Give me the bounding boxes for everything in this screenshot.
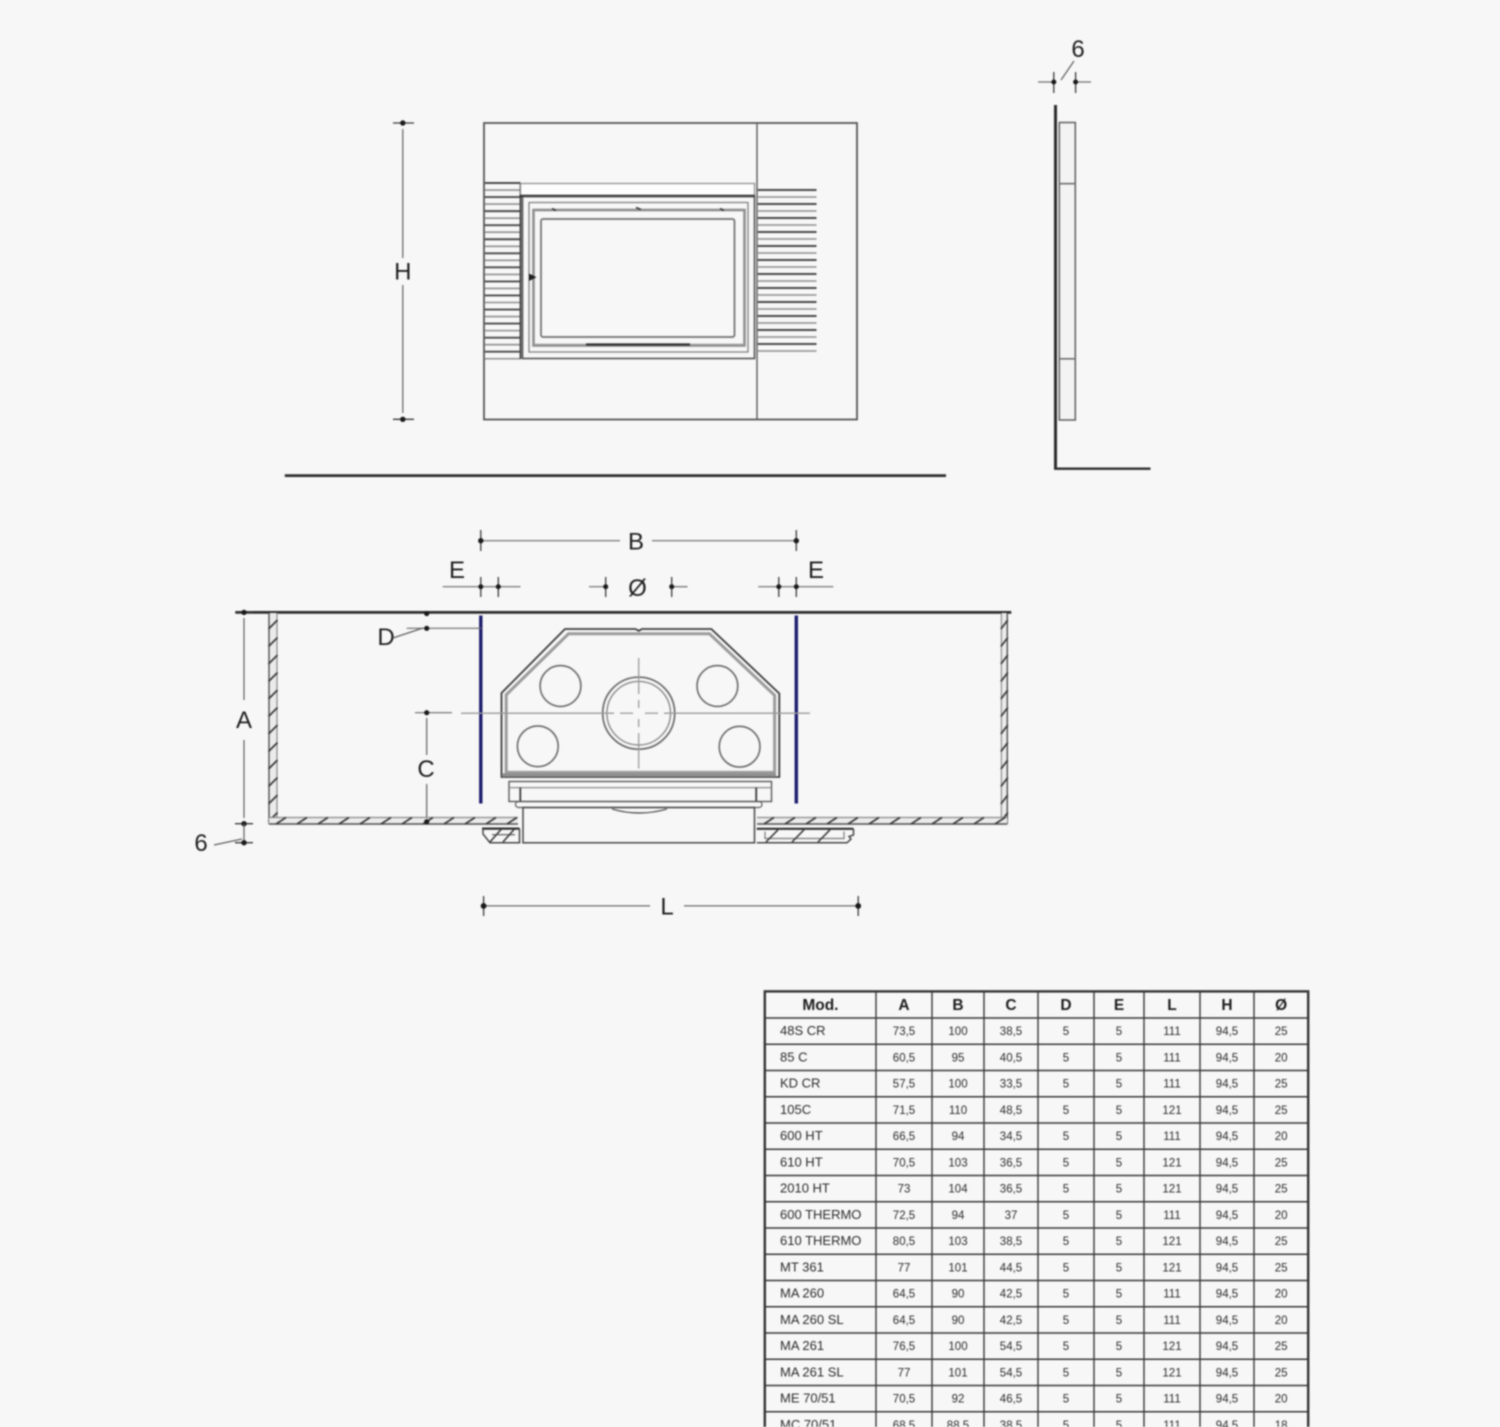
svg-text:D: D bbox=[377, 624, 394, 651]
svg-text:5: 5 bbox=[1063, 1026, 1069, 1038]
svg-text:121: 121 bbox=[1162, 1157, 1181, 1169]
svg-text:94: 94 bbox=[952, 1131, 965, 1143]
svg-text:MA 260: MA 260 bbox=[780, 1286, 824, 1301]
svg-text:20: 20 bbox=[1275, 1289, 1288, 1301]
svg-text:94,5: 94,5 bbox=[1216, 1052, 1238, 1064]
svg-text:5: 5 bbox=[1063, 1341, 1069, 1353]
svg-text:5: 5 bbox=[1063, 1262, 1069, 1274]
svg-text:20: 20 bbox=[1275, 1394, 1288, 1406]
svg-text:88,5: 88,5 bbox=[947, 1420, 969, 1427]
svg-text:94,5: 94,5 bbox=[1216, 1315, 1238, 1327]
svg-text:5: 5 bbox=[1063, 1105, 1069, 1117]
svg-text:70,5: 70,5 bbox=[893, 1157, 915, 1169]
svg-text:90: 90 bbox=[952, 1315, 965, 1327]
svg-text:40,5: 40,5 bbox=[1000, 1052, 1022, 1064]
svg-text:100: 100 bbox=[948, 1026, 967, 1038]
svg-text:6: 6 bbox=[1071, 36, 1084, 63]
svg-text:38,5: 38,5 bbox=[1000, 1420, 1022, 1427]
svg-text:25: 25 bbox=[1275, 1236, 1288, 1248]
svg-text:54,5: 54,5 bbox=[1000, 1367, 1022, 1379]
svg-text:5: 5 bbox=[1116, 1105, 1122, 1117]
svg-text:68,5: 68,5 bbox=[893, 1420, 915, 1427]
svg-text:37: 37 bbox=[1005, 1210, 1018, 1222]
svg-text:94,5: 94,5 bbox=[1216, 1184, 1238, 1196]
svg-text:46,5: 46,5 bbox=[1000, 1394, 1022, 1406]
svg-text:36,5: 36,5 bbox=[1000, 1184, 1022, 1196]
svg-text:5: 5 bbox=[1116, 1210, 1122, 1222]
svg-text:101: 101 bbox=[948, 1367, 967, 1379]
svg-text:5: 5 bbox=[1063, 1131, 1069, 1143]
svg-text:111: 111 bbox=[1163, 1131, 1180, 1143]
svg-text:25: 25 bbox=[1275, 1105, 1288, 1117]
svg-text:111: 111 bbox=[1163, 1052, 1180, 1064]
svg-text:H: H bbox=[394, 259, 411, 286]
svg-text:66,5: 66,5 bbox=[893, 1131, 915, 1143]
svg-text:5: 5 bbox=[1116, 1420, 1122, 1427]
svg-text:111: 111 bbox=[1163, 1315, 1180, 1327]
svg-text:E: E bbox=[1114, 997, 1124, 1014]
svg-text:6: 6 bbox=[194, 830, 207, 857]
svg-text:94,5: 94,5 bbox=[1216, 1262, 1238, 1274]
svg-text:25: 25 bbox=[1275, 1262, 1288, 1274]
svg-text:111: 111 bbox=[1163, 1394, 1180, 1406]
svg-text:121: 121 bbox=[1162, 1341, 1181, 1353]
svg-text:ME 70/51: ME 70/51 bbox=[780, 1391, 836, 1406]
svg-text:94,5: 94,5 bbox=[1216, 1105, 1238, 1117]
svg-text:77: 77 bbox=[898, 1367, 911, 1379]
svg-text:E: E bbox=[449, 557, 465, 584]
svg-text:610 THERMO: 610 THERMO bbox=[780, 1233, 861, 1248]
svg-text:85 C: 85 C bbox=[780, 1049, 807, 1064]
svg-text:70,5: 70,5 bbox=[893, 1394, 915, 1406]
svg-text:5: 5 bbox=[1116, 1262, 1122, 1274]
svg-text:100: 100 bbox=[948, 1079, 967, 1091]
svg-text:71,5: 71,5 bbox=[893, 1105, 915, 1117]
svg-text:64,5: 64,5 bbox=[893, 1315, 915, 1327]
svg-text:5: 5 bbox=[1063, 1184, 1069, 1196]
svg-text:94,5: 94,5 bbox=[1216, 1157, 1238, 1169]
svg-text:94,5: 94,5 bbox=[1216, 1420, 1238, 1427]
svg-text:38,5: 38,5 bbox=[1000, 1236, 1022, 1248]
svg-text:5: 5 bbox=[1063, 1052, 1069, 1064]
svg-text:610 HT: 610 HT bbox=[780, 1154, 823, 1169]
svg-text:103: 103 bbox=[948, 1236, 967, 1248]
svg-text:5: 5 bbox=[1116, 1052, 1122, 1064]
svg-text:MA 261: MA 261 bbox=[780, 1338, 824, 1353]
svg-text:111: 111 bbox=[1163, 1026, 1180, 1038]
svg-text:Mod.: Mod. bbox=[802, 997, 838, 1014]
svg-text:KD CR: KD CR bbox=[780, 1076, 820, 1091]
svg-text:94,5: 94,5 bbox=[1216, 1131, 1238, 1143]
svg-text:64,5: 64,5 bbox=[893, 1289, 915, 1301]
svg-text:5: 5 bbox=[1116, 1079, 1122, 1091]
svg-text:5: 5 bbox=[1063, 1079, 1069, 1091]
svg-text:5: 5 bbox=[1116, 1394, 1122, 1406]
svg-text:42,5: 42,5 bbox=[1000, 1289, 1022, 1301]
svg-text:600 THERMO: 600 THERMO bbox=[780, 1207, 861, 1222]
svg-text:103: 103 bbox=[948, 1157, 967, 1169]
svg-text:121: 121 bbox=[1162, 1236, 1181, 1248]
svg-text:B: B bbox=[952, 997, 963, 1014]
svg-text:73,5: 73,5 bbox=[893, 1026, 915, 1038]
svg-text:104: 104 bbox=[948, 1184, 968, 1196]
svg-text:94,5: 94,5 bbox=[1216, 1341, 1238, 1353]
svg-text:95: 95 bbox=[952, 1052, 965, 1064]
svg-text:5: 5 bbox=[1116, 1184, 1122, 1196]
svg-text:44,5: 44,5 bbox=[1000, 1262, 1022, 1274]
svg-text:94,5: 94,5 bbox=[1216, 1026, 1238, 1038]
svg-text:25: 25 bbox=[1275, 1341, 1288, 1353]
svg-text:20: 20 bbox=[1275, 1131, 1288, 1143]
svg-text:A: A bbox=[898, 997, 909, 1014]
svg-text:25: 25 bbox=[1275, 1367, 1288, 1379]
svg-text:MA 260 SL: MA 260 SL bbox=[780, 1312, 844, 1327]
svg-text:92: 92 bbox=[952, 1394, 965, 1406]
svg-text:5: 5 bbox=[1063, 1210, 1069, 1222]
svg-text:94,5: 94,5 bbox=[1216, 1394, 1238, 1406]
svg-text:5: 5 bbox=[1063, 1157, 1069, 1169]
svg-text:MC 70/51: MC 70/51 bbox=[780, 1417, 836, 1427]
svg-text:5: 5 bbox=[1063, 1236, 1069, 1248]
svg-text:25: 25 bbox=[1275, 1184, 1288, 1196]
svg-text:20: 20 bbox=[1275, 1210, 1288, 1222]
svg-text:5: 5 bbox=[1116, 1131, 1122, 1143]
svg-text:MT 361: MT 361 bbox=[780, 1259, 824, 1274]
svg-text:73: 73 bbox=[898, 1184, 911, 1196]
svg-text:25: 25 bbox=[1275, 1026, 1288, 1038]
svg-text:60,5: 60,5 bbox=[893, 1052, 915, 1064]
svg-text:MA 261 SL: MA 261 SL bbox=[780, 1364, 844, 1379]
svg-text:D: D bbox=[1060, 997, 1071, 1014]
svg-text:H: H bbox=[1221, 997, 1232, 1014]
svg-text:C: C bbox=[1005, 997, 1016, 1014]
svg-text:94,5: 94,5 bbox=[1216, 1367, 1238, 1379]
svg-text:34,5: 34,5 bbox=[1000, 1131, 1022, 1143]
svg-text:20: 20 bbox=[1275, 1315, 1288, 1327]
svg-text:Ø: Ø bbox=[1275, 997, 1287, 1014]
svg-text:5: 5 bbox=[1063, 1420, 1069, 1427]
svg-text:121: 121 bbox=[1162, 1262, 1181, 1274]
svg-text:94,5: 94,5 bbox=[1216, 1236, 1238, 1248]
svg-text:94,5: 94,5 bbox=[1216, 1210, 1238, 1222]
svg-text:76,5: 76,5 bbox=[893, 1341, 915, 1353]
svg-text:33,5: 33,5 bbox=[1000, 1079, 1022, 1091]
svg-text:5: 5 bbox=[1063, 1289, 1069, 1301]
svg-text:5: 5 bbox=[1116, 1367, 1122, 1379]
svg-text:5: 5 bbox=[1116, 1236, 1122, 1248]
svg-text:57,5: 57,5 bbox=[893, 1079, 915, 1091]
svg-text:121: 121 bbox=[1162, 1367, 1181, 1379]
svg-text:54,5: 54,5 bbox=[1000, 1341, 1022, 1353]
svg-text:20: 20 bbox=[1275, 1052, 1288, 1064]
svg-text:5: 5 bbox=[1063, 1394, 1069, 1406]
svg-text:600 HT: 600 HT bbox=[780, 1128, 823, 1143]
svg-text:38,5: 38,5 bbox=[1000, 1026, 1022, 1038]
svg-text:5: 5 bbox=[1116, 1315, 1122, 1327]
svg-text:A: A bbox=[236, 707, 252, 734]
svg-text:111: 111 bbox=[1163, 1289, 1180, 1301]
svg-text:5: 5 bbox=[1063, 1315, 1069, 1327]
svg-text:111: 111 bbox=[1163, 1079, 1180, 1091]
svg-text:110: 110 bbox=[949, 1105, 967, 1117]
svg-text:121: 121 bbox=[1162, 1105, 1181, 1117]
svg-text:5: 5 bbox=[1116, 1026, 1122, 1038]
svg-text:5: 5 bbox=[1116, 1341, 1122, 1353]
svg-text:101: 101 bbox=[948, 1262, 967, 1274]
svg-text:94,5: 94,5 bbox=[1216, 1079, 1238, 1091]
svg-text:5: 5 bbox=[1063, 1367, 1069, 1379]
svg-text:Ø: Ø bbox=[628, 575, 647, 602]
svg-text:72,5: 72,5 bbox=[893, 1210, 915, 1222]
svg-text:C: C bbox=[417, 756, 434, 783]
svg-text:100: 100 bbox=[948, 1341, 967, 1353]
svg-text:L: L bbox=[660, 894, 673, 921]
svg-text:111: 111 bbox=[1163, 1210, 1180, 1222]
svg-text:121: 121 bbox=[1162, 1184, 1181, 1196]
svg-text:94,5: 94,5 bbox=[1216, 1289, 1238, 1301]
svg-text:B: B bbox=[628, 529, 644, 556]
svg-text:80,5: 80,5 bbox=[893, 1236, 915, 1248]
svg-text:90: 90 bbox=[952, 1289, 965, 1301]
svg-text:105C: 105C bbox=[780, 1102, 811, 1117]
svg-text:36,5: 36,5 bbox=[1000, 1157, 1022, 1169]
svg-text:42,5: 42,5 bbox=[1000, 1315, 1022, 1327]
svg-text:111: 111 bbox=[1163, 1420, 1180, 1427]
svg-text:94: 94 bbox=[952, 1210, 965, 1222]
svg-text:E: E bbox=[808, 557, 824, 584]
svg-text:25: 25 bbox=[1275, 1157, 1288, 1169]
svg-text:L: L bbox=[1167, 997, 1176, 1014]
svg-text:5: 5 bbox=[1116, 1289, 1122, 1301]
svg-text:25: 25 bbox=[1275, 1079, 1288, 1091]
svg-text:48S CR: 48S CR bbox=[780, 1023, 826, 1038]
svg-text:18: 18 bbox=[1275, 1420, 1288, 1427]
svg-text:5: 5 bbox=[1116, 1157, 1122, 1169]
svg-text:48,5: 48,5 bbox=[1000, 1105, 1022, 1117]
svg-text:77: 77 bbox=[898, 1262, 911, 1274]
svg-text:2010 HT: 2010 HT bbox=[780, 1181, 830, 1196]
